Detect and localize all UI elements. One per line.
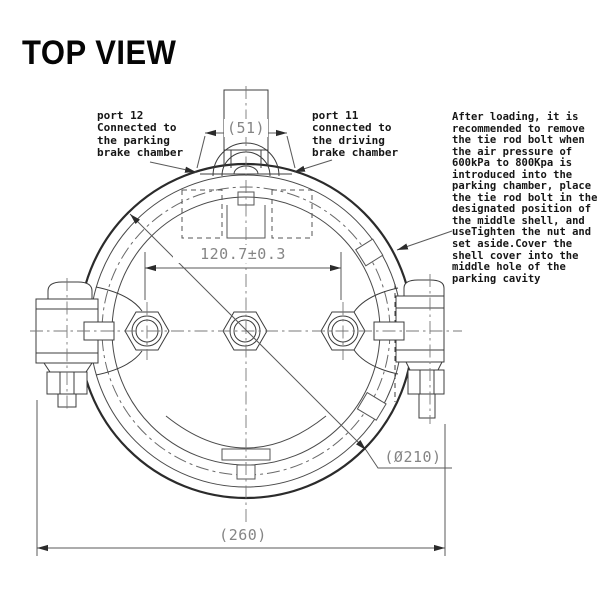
port11-label: port 11 connected to the driving brake c… [312, 110, 422, 160]
left-clamp-bottom-jaw [96, 351, 142, 375]
port11-leader [294, 160, 332, 172]
dim-shell-diameter-label: (Ø210) [374, 448, 452, 466]
note-leader [397, 231, 452, 250]
left-clamp-top-jaw [96, 287, 142, 311]
dim-bolt-spacing-label: 120.7±0.3 [173, 245, 313, 263]
right-clamp-bolt-stud [419, 394, 435, 418]
loading-instruction-note: After loading, it is recommended to remo… [452, 112, 599, 285]
right-clamp-cap [404, 280, 444, 296]
port12-hidden-pocket [182, 190, 222, 238]
page-title: TOP VIEW [22, 33, 176, 73]
left-clamp-cap [48, 282, 92, 299]
port11-hidden-pocket [272, 190, 312, 238]
right-clamp-bolt-head [408, 370, 444, 394]
drawing-canvas: TOP VIEW port 12 Connected to the parkin… [0, 0, 600, 600]
port12-leader [150, 162, 196, 172]
port12-label: port 12 Connected to the parking brake c… [97, 110, 207, 160]
dim-port-width-label: (51) [224, 119, 268, 137]
dim-overall-width-label: (260) [212, 526, 274, 544]
rim-slots [222, 239, 386, 479]
brake-chamber-top-view-drawing [0, 0, 600, 600]
